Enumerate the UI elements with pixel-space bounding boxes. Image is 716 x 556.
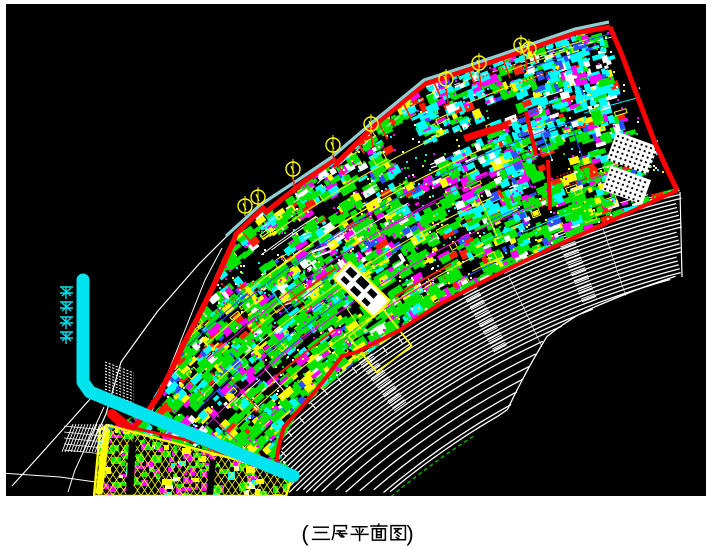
svg-text:(: (	[301, 521, 309, 546]
svg-text:): )	[406, 521, 413, 546]
